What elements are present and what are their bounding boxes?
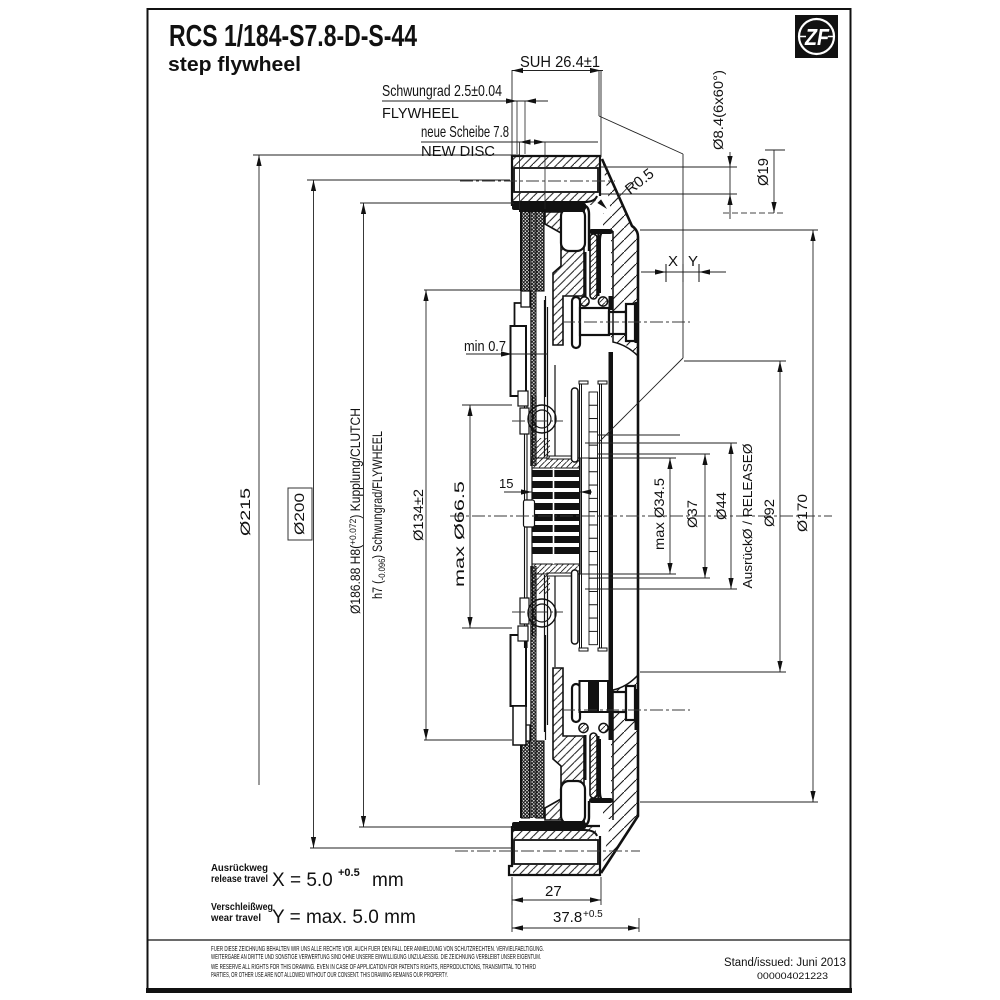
svg-text:Ø19: Ø19 bbox=[755, 158, 772, 186]
svg-text:WE RESERVE ALL RIGHTS FOR THIS: WE RESERVE ALL RIGHTS FOR THIS DRAWING. … bbox=[211, 964, 536, 971]
svg-text:Ausrückweg: Ausrückweg bbox=[211, 863, 268, 874]
svg-text:AusrückØ / RELEASEØ: AusrückØ / RELEASEØ bbox=[740, 444, 755, 589]
svg-text:max Ø66.5: max Ø66.5 bbox=[451, 481, 467, 587]
svg-text:X: X bbox=[668, 253, 678, 270]
svg-text:min 0.7: min 0.7 bbox=[464, 338, 506, 355]
svg-text:Ø134±2: Ø134±2 bbox=[410, 489, 426, 541]
svg-text:Ø186.88 H8(+0.072) Kupplung/CL: Ø186.88 H8(+0.072) Kupplung/CLUTCH bbox=[348, 408, 363, 614]
svg-text:release travel: release travel bbox=[211, 874, 268, 885]
svg-text:Ø37: Ø37 bbox=[684, 500, 700, 528]
svg-text:Ø170: Ø170 bbox=[794, 494, 810, 532]
svg-text:Ø215: Ø215 bbox=[237, 488, 253, 536]
svg-text:mm: mm bbox=[372, 870, 404, 891]
svg-text:Ø200: Ø200 bbox=[291, 493, 307, 535]
svg-text:000004021223: 000004021223 bbox=[757, 971, 828, 982]
svg-text:15: 15 bbox=[499, 476, 513, 491]
svg-text:FLYWHEEL: FLYWHEEL bbox=[382, 105, 459, 122]
svg-text:Ø44: Ø44 bbox=[713, 492, 729, 520]
svg-text:step flywheel: step flywheel bbox=[168, 54, 301, 76]
svg-text:wear travel: wear travel bbox=[210, 913, 261, 924]
svg-text:+0.5: +0.5 bbox=[583, 909, 603, 920]
svg-text:Y: Y bbox=[688, 253, 698, 270]
svg-text:+0.5: +0.5 bbox=[338, 867, 360, 879]
svg-text:FUER DIESE ZEICHNUNG BEHALTEN: FUER DIESE ZEICHNUNG BEHALTEN WIR UNS AL… bbox=[211, 946, 544, 953]
svg-text:Ø92: Ø92 bbox=[761, 499, 777, 527]
svg-text:NEW DISC: NEW DISC bbox=[421, 143, 495, 160]
svg-text:max Ø34.5: max Ø34.5 bbox=[651, 478, 667, 550]
svg-text:R0.5: R0.5 bbox=[622, 165, 657, 198]
svg-text:Y = max. 5.0 mm: Y = max. 5.0 mm bbox=[272, 907, 416, 928]
svg-text:Schwungrad 2.5±0.04: Schwungrad 2.5±0.04 bbox=[382, 83, 502, 100]
svg-text:37.8: 37.8 bbox=[553, 909, 582, 926]
svg-text:27: 27 bbox=[545, 883, 562, 900]
svg-text:X = 5.0: X = 5.0 bbox=[272, 870, 333, 891]
svg-text:Stand/issued: Juni 2013: Stand/issued: Juni 2013 bbox=[724, 957, 846, 969]
svg-text:SUH 26.4±1: SUH 26.4±1 bbox=[520, 54, 600, 71]
svg-text:WEITERGABE AN DRITTE UND SONST: WEITERGABE AN DRITTE UND SONSTIGE VERWER… bbox=[211, 954, 541, 961]
svg-text:Ø8.4(6x60°): Ø8.4(6x60°) bbox=[710, 70, 726, 150]
svg-text:neue Scheibe 7.8: neue Scheibe 7.8 bbox=[421, 124, 509, 141]
svg-text:Verschleißweg: Verschleißweg bbox=[211, 902, 273, 913]
svg-text:RCS 1/184-S7.8-D-S-44: RCS 1/184-S7.8-D-S-44 bbox=[169, 18, 418, 53]
svg-text:h7 (-0.096) Schwungrad/FLYWHEE: h7 (-0.096) Schwungrad/FLYWHEEL bbox=[370, 431, 388, 599]
svg-text:PARTIES, OR OTHER USE ARE NOT: PARTIES, OR OTHER USE ARE NOT ALLOWED WI… bbox=[211, 972, 448, 979]
svg-text:ZF: ZF bbox=[804, 24, 830, 50]
